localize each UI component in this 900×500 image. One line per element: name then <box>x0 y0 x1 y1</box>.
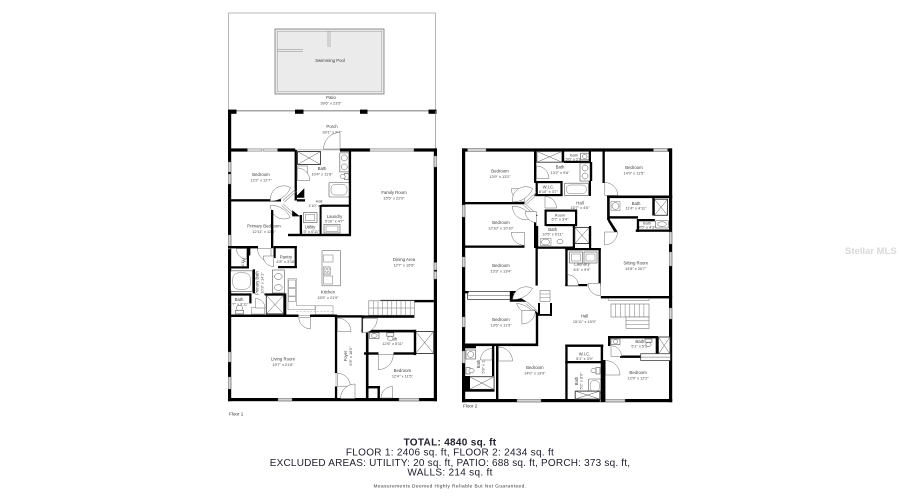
svg-text:Bath: Bath <box>318 166 327 171</box>
svg-text:Bath: Bath <box>556 165 565 170</box>
svg-text:Hall: Hall <box>581 314 588 319</box>
svg-text:13'2" x 9'6": 13'2" x 9'6" <box>550 170 570 175</box>
svg-text:10'4" x 11'8": 10'4" x 11'8" <box>311 172 333 177</box>
svg-text:6'9" x 18'0": 6'9" x 18'0" <box>348 346 353 366</box>
svg-text:39'6" x 23'5": 39'6" x 23'5" <box>320 101 342 106</box>
svg-text:10'3" x 14'1": 10'3" x 14'1" <box>260 272 265 294</box>
svg-text:19'7" x 21'6": 19'7" x 21'6" <box>272 362 294 367</box>
svg-text:13'3" x 13'4": 13'3" x 13'4" <box>490 269 512 274</box>
svg-text:Swimming Pool: Swimming Pool <box>315 58 345 63</box>
svg-text:Bedroom: Bedroom <box>492 220 510 225</box>
svg-text:11'4" x 4'11": 11'4" x 4'11" <box>626 206 647 211</box>
svg-text:12'2" x 12'7": 12'2" x 12'7" <box>250 178 272 183</box>
svg-text:5'1" x 3'9": 5'1" x 3'9" <box>576 356 594 361</box>
svg-text:14'9" x 11'5": 14'9" x 11'5" <box>623 171 645 176</box>
svg-text:Bedroom: Bedroom <box>625 165 643 170</box>
svg-text:WALLS: 214 sq. ft: WALLS: 214 sq. ft <box>407 468 492 479</box>
svg-text:5'3" x 0'11": 5'3" x 0'11" <box>301 229 321 234</box>
svg-text:Kitchen: Kitchen <box>321 290 336 295</box>
svg-text:Bedroom: Bedroom <box>629 370 647 375</box>
svg-text:12'7" x 16'5": 12'7" x 16'5" <box>393 263 415 268</box>
svg-text:5'2" x 8'0": 5'2" x 8'0" <box>579 372 584 390</box>
svg-text:Bedroom: Bedroom <box>394 368 412 373</box>
svg-text:Bedroom: Bedroom <box>252 172 270 177</box>
svg-text:6'7" x 3'4": 6'7" x 3'4" <box>551 217 569 222</box>
svg-text:12'10" x 10'10": 12'10" x 10'10" <box>488 226 514 231</box>
svg-text:13'6" x 11'9": 13'6" x 11'9" <box>490 323 512 328</box>
svg-text:15'11" x 15'9": 15'11" x 15'9" <box>573 319 597 324</box>
svg-text:12'9" x 12'2": 12'9" x 12'2" <box>627 376 649 381</box>
svg-text:Primary Bedroom: Primary Bedroom <box>247 224 281 229</box>
svg-text:4'5" x 4'3": 4'5" x 4'3" <box>638 225 656 230</box>
svg-text:12'6" x 5'11": 12'6" x 5'11" <box>382 341 404 346</box>
svg-text:Living Room: Living Room <box>271 357 295 362</box>
svg-text:6'4" x 9'9": 6'4" x 9'9" <box>573 267 591 272</box>
svg-text:Patio: Patio <box>326 95 336 100</box>
svg-text:FLOOR 1: 2406 sq. ft, FLOOR 2:: FLOOR 1: 2406 sq. ft, FLOOR 2: 2434 sq. … <box>346 447 554 458</box>
svg-text:Bedroom: Bedroom <box>491 169 509 174</box>
svg-text:15'5" x 22'0": 15'5" x 22'0" <box>383 196 405 201</box>
svg-text:Stellar MLS: Stellar MLS <box>845 246 897 257</box>
svg-text:12'4" x 11'5": 12'4" x 11'5" <box>392 374 414 379</box>
svg-text:Measurements Deemed Highly Rel: Measurements Deemed Highly Reliable But … <box>374 484 527 490</box>
svg-text:5'10" x 4'7": 5'10" x 4'7" <box>325 219 345 224</box>
svg-text:6'10" x 3'7": 6'10" x 3'7" <box>539 189 559 194</box>
svg-text:Bedroom: Bedroom <box>492 263 510 268</box>
svg-text:Family Room: Family Room <box>381 190 407 195</box>
svg-text:15'5" x 21'9": 15'5" x 21'9" <box>317 295 339 300</box>
svg-text:14'0" x 13'9": 14'0" x 13'9" <box>524 371 546 376</box>
svg-text:Dining Area: Dining Area <box>393 257 416 262</box>
svg-text:13'9" x 13'2": 13'9" x 13'2" <box>489 174 511 179</box>
svg-text:Bedroom: Bedroom <box>526 365 544 370</box>
svg-text:Floor 2: Floor 2 <box>463 404 478 409</box>
svg-text:15'7" x 4'6": 15'7" x 4'6" <box>570 205 590 210</box>
svg-text:Sitting Room: Sitting Room <box>623 261 648 266</box>
svg-text:4'8" x 3'16": 4'8" x 3'16" <box>276 259 296 264</box>
svg-text:Porch: Porch <box>326 124 338 129</box>
svg-text:14'8" x 20'7": 14'8" x 20'7" <box>625 266 647 271</box>
svg-text:Bedroom: Bedroom <box>492 317 510 322</box>
svg-text:10'5" x 6'11": 10'5" x 6'11" <box>542 232 564 237</box>
svg-text:Floor 1: Floor 1 <box>229 412 244 417</box>
